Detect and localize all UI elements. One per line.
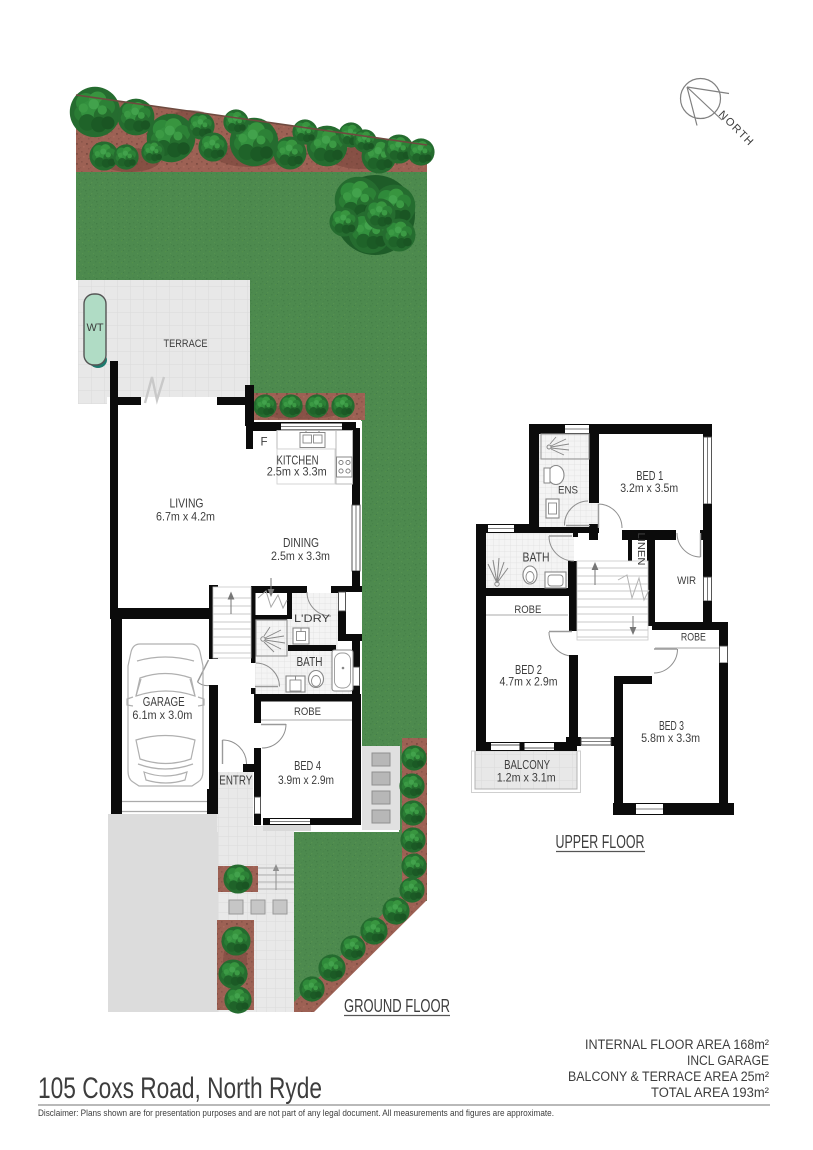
svg-text:6.1m x 3.0m: 6.1m x 3.0m bbox=[132, 708, 192, 722]
svg-text:3.9m x 2.9m: 3.9m x 2.9m bbox=[278, 773, 334, 787]
svg-text:ENS: ENS bbox=[558, 485, 578, 497]
svg-text:LINEN: LINEN bbox=[635, 533, 647, 566]
svg-text:1.2m x 3.1m: 1.2m x 3.1m bbox=[497, 771, 556, 785]
svg-text:UPPER FLOOR: UPPER FLOOR bbox=[556, 832, 645, 852]
svg-text:INTERNAL FLOOR AREA 168m²: INTERNAL FLOOR AREA 168m² bbox=[585, 1037, 769, 1052]
svg-text:TOTAL AREA 193m²: TOTAL AREA 193m² bbox=[651, 1085, 769, 1100]
svg-text:INCL GARAGE: INCL GARAGE bbox=[687, 1053, 769, 1068]
svg-text:BATH: BATH bbox=[297, 655, 323, 669]
svg-text:2.5m x 3.3m: 2.5m x 3.3m bbox=[267, 465, 327, 479]
svg-text:ROBE: ROBE bbox=[514, 604, 541, 616]
svg-text:NORTH: NORTH bbox=[716, 109, 756, 149]
svg-text:GARAGE: GARAGE bbox=[143, 695, 185, 709]
svg-text:LIVING: LIVING bbox=[170, 497, 204, 511]
svg-text:L'DRY: L'DRY bbox=[294, 613, 331, 625]
svg-text:WIR: WIR bbox=[677, 575, 696, 587]
svg-text:GROUND FLOOR: GROUND FLOOR bbox=[344, 996, 450, 1016]
svg-text:WT: WT bbox=[86, 322, 103, 334]
svg-text:DINING: DINING bbox=[283, 536, 319, 550]
svg-text:BED 4: BED 4 bbox=[294, 759, 321, 773]
svg-text:2.5m x 3.3m: 2.5m x 3.3m bbox=[271, 549, 330, 563]
svg-text:TERRACE: TERRACE bbox=[164, 338, 208, 350]
svg-text:105 Coxs Road, North Ryde: 105 Coxs Road, North Ryde bbox=[38, 1072, 322, 1105]
svg-text:ROBE: ROBE bbox=[681, 632, 706, 644]
svg-text:BATH: BATH bbox=[523, 551, 550, 565]
svg-text:F: F bbox=[260, 437, 267, 449]
svg-text:6.7m x 4.2m: 6.7m x 4.2m bbox=[156, 510, 215, 524]
svg-text:ROBE: ROBE bbox=[294, 706, 321, 718]
svg-text:Disclaimer: Plans shown are fo: Disclaimer: Plans shown are for presenta… bbox=[38, 1108, 554, 1118]
svg-text:5.8m x 3.3m: 5.8m x 3.3m bbox=[641, 731, 700, 745]
svg-text:4.7m x 2.9m: 4.7m x 2.9m bbox=[500, 675, 558, 689]
svg-text:ENTRY: ENTRY bbox=[219, 774, 253, 788]
svg-text:BALCONY & TERRACE AREA 25m²: BALCONY & TERRACE AREA 25m² bbox=[568, 1069, 769, 1084]
svg-text:3.2m x 3.5m: 3.2m x 3.5m bbox=[620, 481, 678, 495]
